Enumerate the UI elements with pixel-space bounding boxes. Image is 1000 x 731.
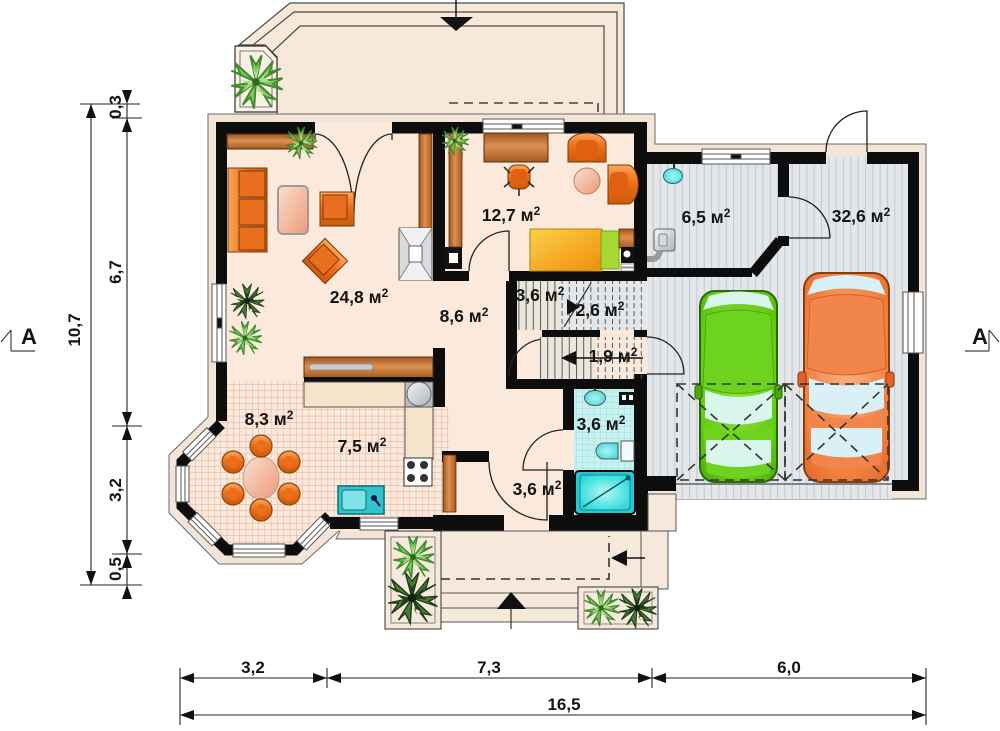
svg-text:0,5: 0,5	[106, 557, 125, 581]
svg-text:1,9 м2: 1,9 м2	[589, 345, 638, 366]
svg-text:A: A	[21, 324, 37, 349]
svg-text:8,6 м2: 8,6 м2	[440, 305, 489, 326]
svg-text:3,6 м2: 3,6 м2	[577, 413, 626, 434]
svg-text:3,6 м2: 3,6 м2	[513, 478, 562, 499]
svg-text:A: A	[972, 324, 988, 349]
svg-text:10,7: 10,7	[65, 313, 84, 346]
svg-text:8,3 м2: 8,3 м2	[245, 408, 294, 429]
svg-text:2,6 м2: 2,6 м2	[576, 299, 625, 320]
svg-text:6,7: 6,7	[106, 260, 125, 284]
svg-text:6,0: 6,0	[777, 658, 801, 677]
svg-text:3,6 м2: 3,6 м2	[516, 284, 565, 305]
svg-text:0,3: 0,3	[106, 95, 125, 119]
svg-text:16,5: 16,5	[547, 695, 580, 714]
svg-text:3,2: 3,2	[106, 478, 125, 502]
svg-text:24,8 м2: 24,8 м2	[330, 286, 389, 307]
svg-text:12,7 м2: 12,7 м2	[482, 204, 541, 225]
svg-text:3,2: 3,2	[241, 658, 265, 677]
svg-text:6,5 м2: 6,5 м2	[682, 206, 731, 227]
svg-text:32,6 м2: 32,6 м2	[832, 205, 891, 226]
svg-text:7,3: 7,3	[477, 658, 501, 677]
svg-text:7,5 м2: 7,5 м2	[338, 435, 387, 456]
